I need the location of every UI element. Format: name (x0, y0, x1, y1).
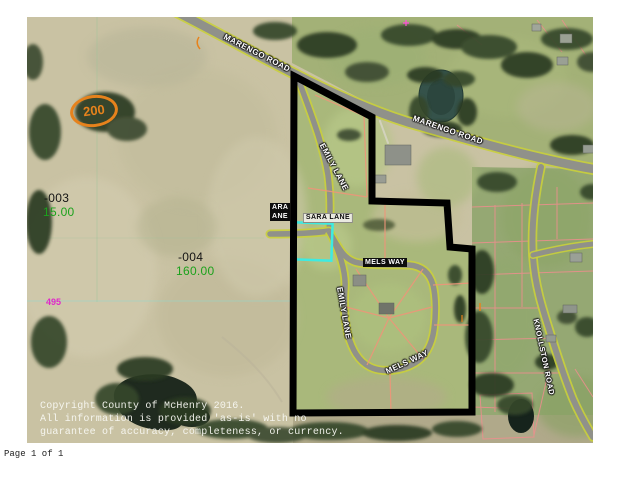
parcel-acres-004: 160.00 (176, 264, 215, 278)
map-print-page: MARENGO ROAD MARENGO ROAD EMILY LANE EMI… (0, 0, 621, 480)
parcel-id-003: -003 (44, 191, 69, 205)
map-viewport: MARENGO ROAD MARENGO ROAD EMILY LANE EMI… (27, 17, 593, 443)
parcel-acres-003: 15.00 (43, 205, 75, 219)
parcel-id-004: -004 (178, 250, 203, 264)
road-label-mels-way-north: MELS WAY (363, 258, 407, 267)
clipped-label-line1: ARA (272, 203, 288, 212)
copyright-notice: Copyright County of McHenry 2016. All in… (40, 400, 344, 439)
road-label-sara-lane-clipped: ARA ANE (270, 203, 290, 221)
clipped-label-line2: ANE (272, 212, 288, 221)
page-number-label: Page 1 of 1 (4, 449, 63, 459)
copyright-line-1: Copyright County of McHenry 2016. (40, 400, 344, 413)
aerial-imagery (27, 17, 593, 443)
road-label-sara-lane: SARA LANE (303, 213, 353, 223)
copyright-line-3: guarantee of accuracy, completeness, or … (40, 426, 344, 439)
road-ref-marker: 495 (46, 297, 61, 307)
route-shield-number: 200 (82, 102, 105, 120)
copyright-line-2: All information is provided 'as-is' with… (40, 413, 344, 426)
